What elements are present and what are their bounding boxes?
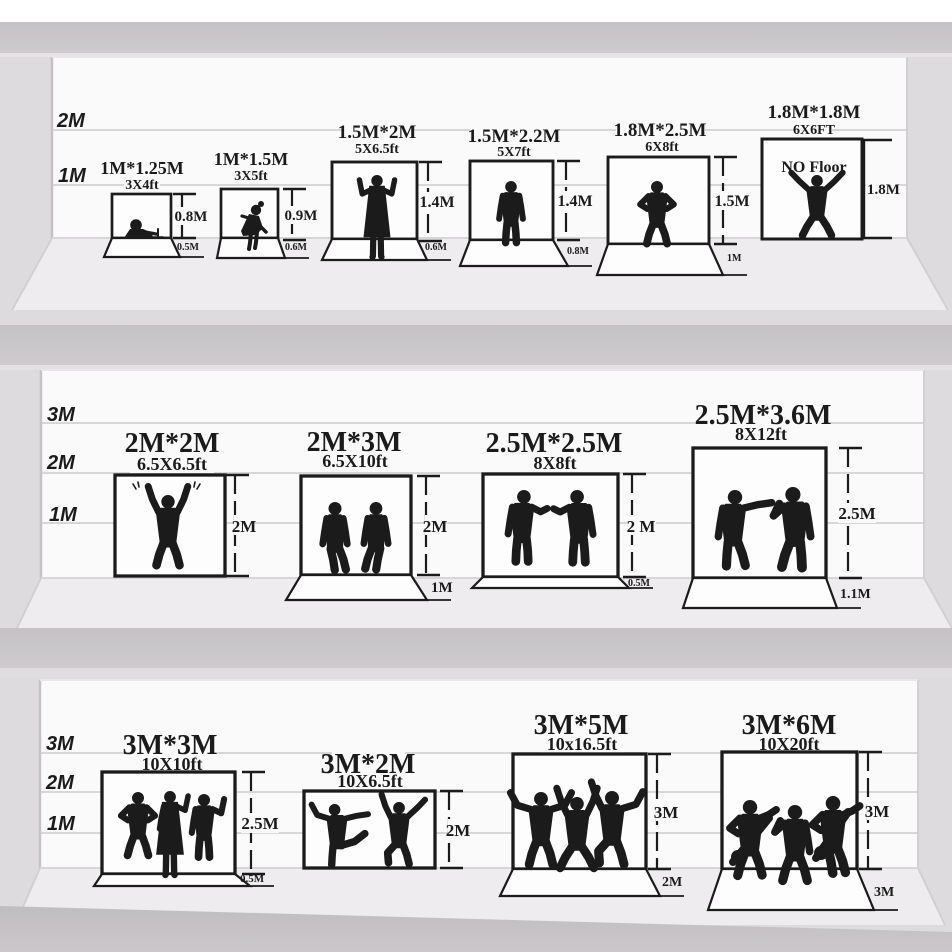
svg-text:1.8M*2.5M: 1.8M*2.5M xyxy=(614,120,707,141)
svg-text:1.5M*2M: 1.5M*2M xyxy=(338,122,417,143)
svg-text:8X12ft: 8X12ft xyxy=(735,424,787,444)
svg-text:6.5X10ft: 6.5X10ft xyxy=(322,451,388,471)
svg-text:6X8ft: 6X8ft xyxy=(645,140,679,155)
svg-text:0.5M: 0.5M xyxy=(628,578,651,589)
svg-text:1.5M: 1.5M xyxy=(714,193,749,210)
svg-text:0.5M: 0.5M xyxy=(177,242,200,253)
svg-text:2M: 2M xyxy=(56,110,86,132)
svg-text:2M: 2M xyxy=(45,772,75,794)
svg-text:2.5M: 2.5M xyxy=(241,814,278,833)
svg-text:5X7ft: 5X7ft xyxy=(497,145,531,160)
svg-text:10x16.5ft: 10x16.5ft xyxy=(547,734,618,754)
svg-text:10X6.5ft: 10X6.5ft xyxy=(337,771,403,791)
svg-text:1.8M*1.8M: 1.8M*1.8M xyxy=(768,102,861,123)
svg-text:1.4M: 1.4M xyxy=(419,194,454,211)
svg-text:3M: 3M xyxy=(865,802,890,821)
svg-text:6X6FT: 6X6FT xyxy=(793,123,836,138)
svg-text:3M: 3M xyxy=(654,803,679,822)
svg-text:1M*1.5M: 1M*1.5M xyxy=(214,149,288,169)
svg-text:0.6M: 0.6M xyxy=(285,242,308,253)
svg-text:1M: 1M xyxy=(47,813,76,835)
svg-text:3M: 3M xyxy=(47,404,76,426)
svg-text:2M: 2M xyxy=(446,821,471,840)
svg-text:0.8M: 0.8M xyxy=(567,246,590,257)
svg-text:0.8M: 0.8M xyxy=(175,209,208,225)
svg-text:0.6M: 0.6M xyxy=(425,242,448,253)
svg-text:8X8ft: 8X8ft xyxy=(534,453,577,473)
svg-text:1.4M: 1.4M xyxy=(557,193,592,210)
svg-text:0.5M: 0.5M xyxy=(240,873,265,885)
svg-text:1.1M: 1.1M xyxy=(840,587,871,602)
svg-text:1M: 1M xyxy=(49,504,78,526)
svg-text:1.5M*2.2M: 1.5M*2.2M xyxy=(468,126,561,147)
svg-text:0.9M: 0.9M xyxy=(285,208,318,224)
svg-text:1M: 1M xyxy=(58,165,87,187)
svg-text:2.5M: 2.5M xyxy=(838,504,875,523)
svg-text:3X5ft: 3X5ft xyxy=(234,169,268,184)
svg-text:1M: 1M xyxy=(431,580,453,596)
svg-text:2M: 2M xyxy=(423,517,448,536)
svg-text:3X4ft: 3X4ft xyxy=(125,178,159,193)
svg-text:2M: 2M xyxy=(662,875,682,890)
svg-text:2M: 2M xyxy=(46,452,76,474)
svg-text:3M: 3M xyxy=(46,733,75,755)
svg-text:1M*1.25M: 1M*1.25M xyxy=(100,158,183,178)
svg-text:1.8M: 1.8M xyxy=(867,182,900,198)
svg-text:6.5X6.5ft: 6.5X6.5ft xyxy=(137,454,207,474)
svg-text:1M: 1M xyxy=(727,253,742,264)
svg-text:2M: 2M xyxy=(232,517,257,536)
svg-text:5X6.5ft: 5X6.5ft xyxy=(355,142,399,157)
svg-text:3M: 3M xyxy=(874,885,894,900)
svg-text:2 M: 2 M xyxy=(627,517,656,536)
